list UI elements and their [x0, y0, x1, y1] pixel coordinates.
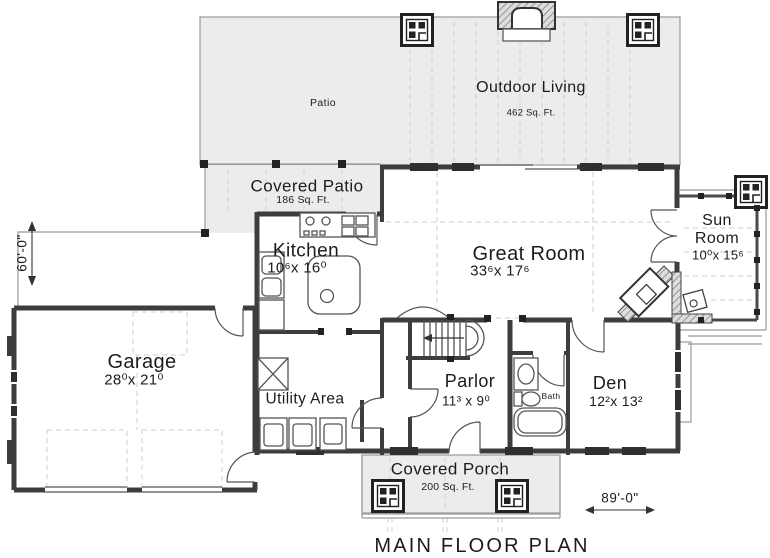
label-parlor-dims: 11³ x 9⁰ [442, 393, 490, 408]
label-kitchen: Kitchen [273, 240, 339, 261]
label-outdoor-living-area: 462 Sq. Ft. [507, 109, 556, 120]
label-sun-room: Sun Room [686, 212, 748, 248]
label-garage-dims: 28⁰x 21⁰ [104, 373, 163, 390]
label-patio: Patio [310, 98, 336, 110]
walls [7, 165, 757, 492]
label-covered-porch: Covered Porch [391, 459, 510, 478]
page-title: MAIN FLOOR PLAN [374, 535, 589, 557]
label-den: Den [593, 373, 627, 393]
label-parlor: Parlor [445, 371, 495, 391]
label-den-dims: 12²x 13² [589, 394, 643, 410]
dimension-height-label: 60'-0" [14, 234, 29, 271]
label-utility-area: Utility Area [266, 390, 345, 407]
dimension-width-label: 89'-0" [601, 490, 638, 505]
floor-plan-page: Patio Outdoor Living 462 Sq. Ft. Covered… [0, 0, 770, 558]
label-garage: Garage [107, 351, 176, 373]
label-outdoor-living: Outdoor Living [476, 79, 586, 97]
label-great-room-dims: 33⁶x 17⁶ [470, 264, 530, 281]
label-covered-patio-area: 186 Sq. Ft. [276, 195, 330, 207]
label-sun-room-dims: 10⁰x 15⁶ [692, 249, 744, 264]
label-covered-patio: Covered Patio [251, 176, 364, 195]
floor-plan-drawing [0, 0, 770, 558]
label-kitchen-dims: 10⁶x 16⁰ [267, 261, 327, 278]
label-covered-porch-area: 200 Sq. Ft. [421, 482, 475, 494]
label-bath: Bath [541, 392, 560, 402]
